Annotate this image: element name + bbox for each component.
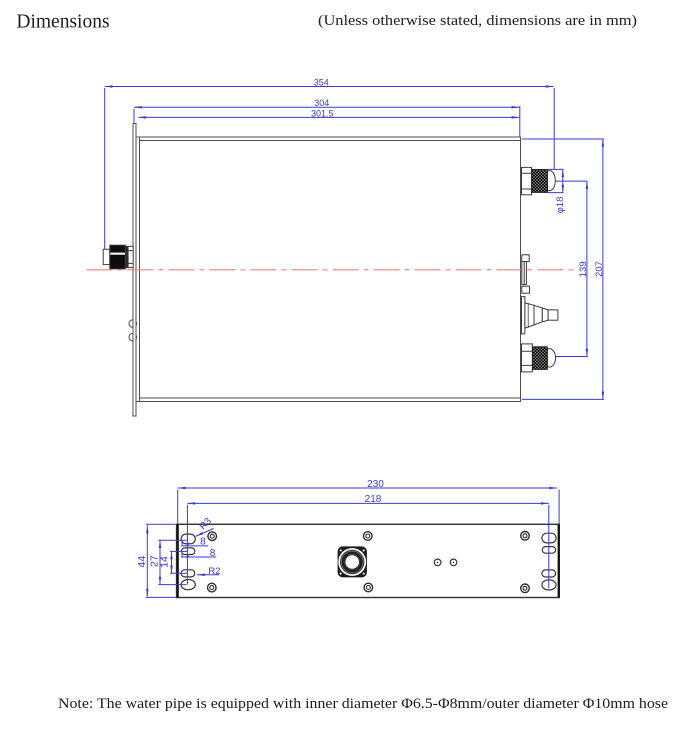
svg-text:139: 139 xyxy=(578,261,589,277)
svg-text:304: 304 xyxy=(314,98,329,108)
svg-text:R2: R2 xyxy=(208,566,220,577)
svg-text:φ18: φ18 xyxy=(555,197,566,214)
svg-text:(Unless otherwise stated, dime: (Unless otherwise stated, dimensions are… xyxy=(318,13,637,29)
svg-text:8: 8 xyxy=(200,537,206,548)
svg-text:354: 354 xyxy=(314,77,329,87)
svg-text:301.5: 301.5 xyxy=(311,108,334,118)
svg-text:8: 8 xyxy=(210,548,216,559)
svg-text:Note: The water pipe is equipp: Note: The water pipe is equipped with in… xyxy=(58,695,668,712)
svg-text:Dimensions: Dimensions xyxy=(16,12,109,33)
svg-text:207: 207 xyxy=(594,261,605,277)
svg-text:230: 230 xyxy=(367,479,384,490)
svg-text:44: 44 xyxy=(136,556,148,568)
svg-text:218: 218 xyxy=(365,494,382,505)
svg-text:14: 14 xyxy=(159,556,171,568)
